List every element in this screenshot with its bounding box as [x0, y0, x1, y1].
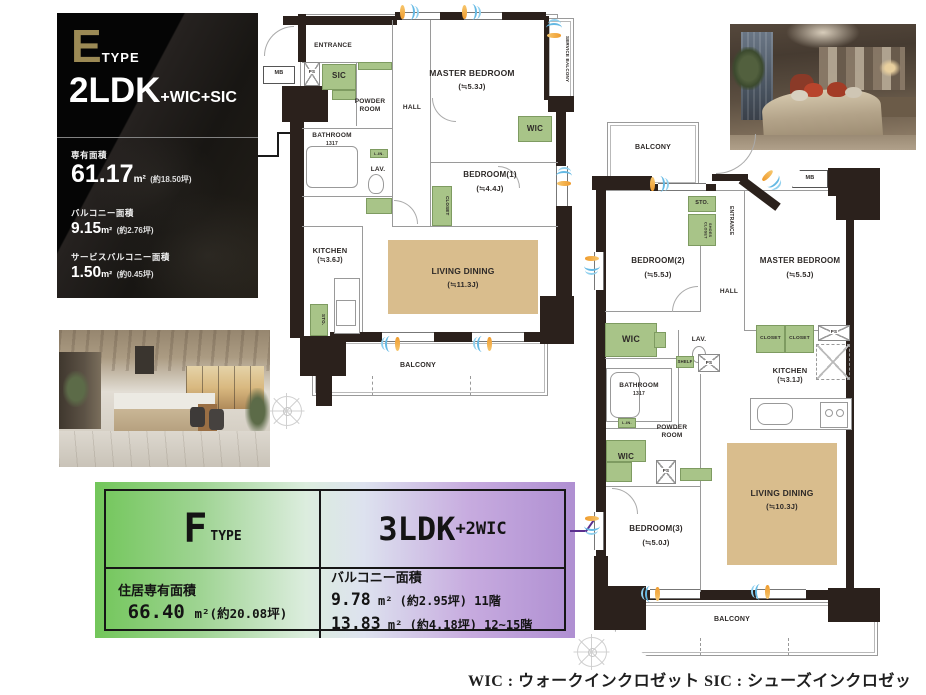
partition-line — [605, 358, 677, 359]
room-label-ps: PS — [698, 360, 720, 366]
washer-space — [680, 468, 712, 481]
wall-segment — [594, 586, 646, 630]
floor-plan-f: BALCONY STO. SHOES CLOSET ENTRANCE MB BE… — [0, 0, 926, 695]
airflow-icon — [582, 514, 602, 530]
wall-segment — [828, 588, 880, 622]
room-label-bedroom2-size: (≒5.5J) — [610, 270, 706, 279]
partition-line — [700, 374, 701, 440]
room-label-bedroom3-size: (≒5.0J) — [608, 538, 704, 547]
balcony-divider — [788, 638, 790, 656]
stove-burner — [825, 409, 833, 417]
room-label-shoes-closet: SHOES CLOSET — [692, 216, 712, 244]
stove-burner — [836, 409, 844, 417]
room-label-balcony: BALCONY — [621, 144, 685, 153]
room-label-entrance: ENTRANCE — [722, 196, 734, 246]
legend-text: WIC : ウォークインクロゼット SIC : シューズインクロゼット — [468, 667, 926, 695]
airflow-icon — [648, 174, 664, 194]
room-label-balcony: BALCONY — [700, 616, 764, 625]
room-label-kitchen: KITCHEN — [762, 366, 818, 375]
partition-line — [700, 440, 701, 592]
room-label-bedroom2: BEDROOM(2) — [610, 256, 706, 266]
room-label-linen: L.IN. — [618, 420, 636, 425]
balcony-divider — [700, 638, 702, 656]
room-label-ps: PS — [818, 329, 850, 335]
room-label-closet: CLOSET — [785, 336, 814, 342]
room-label-master-bedroom: MASTER BEDROOM — [748, 256, 852, 266]
room-label-bedroom3: BEDROOM(3) — [608, 524, 704, 534]
room-label-living-dining: LIVING DINING — [727, 488, 837, 499]
room-label-sto: STO. — [688, 200, 716, 207]
room-label-closet: CLOSET — [756, 336, 785, 342]
room-label-bathroom-size: 1317 — [612, 391, 666, 397]
wall-segment — [828, 168, 880, 196]
airflow-icon — [582, 254, 602, 270]
room-label-hall: HALL — [712, 288, 746, 296]
walk-in-closet-box — [606, 462, 632, 482]
kitchen-stove — [820, 402, 848, 428]
room-label-master-bedroom-size: (≒5.5J) — [748, 270, 852, 279]
room-label-bathroom: BATHROOM — [612, 382, 666, 390]
room-label-mb: MB — [792, 175, 828, 182]
airflow-icon — [756, 582, 772, 602]
airflow-icon — [757, 165, 782, 190]
room-label-kitchen-size: (≒3.1J) — [762, 377, 818, 386]
room-label-shelf: SHELF — [676, 359, 694, 364]
room-label-living-dining-size: (≒10.3J) — [727, 502, 837, 511]
room-label-wic: WIC — [605, 334, 657, 345]
partition-line — [744, 190, 745, 330]
compass-icon — [577, 637, 607, 667]
brochure-page: ETYPE 2LDK+WIC+SIC 専有面積 61.17m² (約18.50坪… — [0, 0, 926, 695]
door-arc — [716, 134, 756, 174]
kitchen-sink — [757, 403, 793, 425]
partition-line — [606, 486, 700, 487]
partition-line — [678, 330, 679, 426]
room-label-powder-room: POWDER ROOM — [650, 424, 694, 440]
wall-segment — [836, 196, 880, 220]
room-label-ps: PS — [656, 468, 676, 474]
refrigerator-space — [816, 344, 850, 380]
room-label-lav: LAV. — [684, 336, 714, 344]
room-label-wic: WIC — [606, 452, 646, 462]
airflow-icon — [646, 584, 662, 604]
